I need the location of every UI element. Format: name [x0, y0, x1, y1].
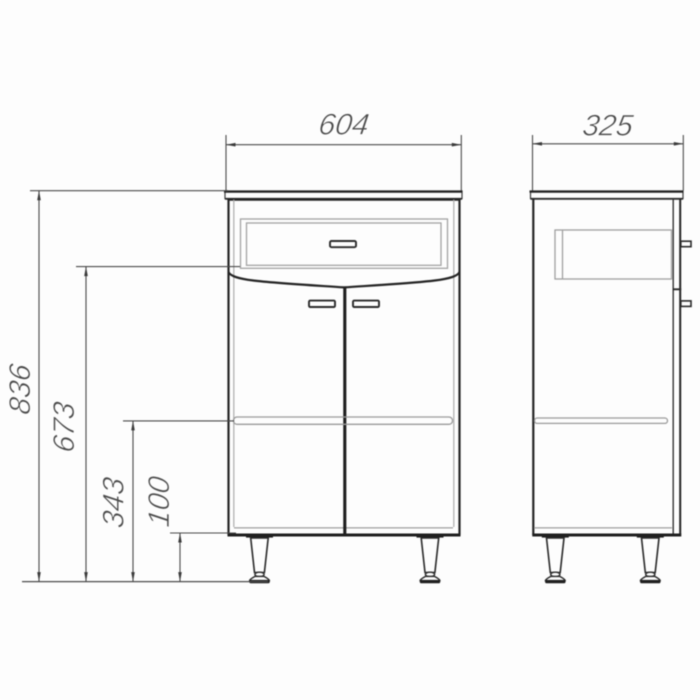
- svg-text:100: 100: [143, 474, 176, 529]
- svg-text:836: 836: [4, 362, 37, 417]
- svg-text:343: 343: [98, 475, 131, 530]
- svg-text:325: 325: [581, 110, 636, 143]
- svg-text:604: 604: [317, 109, 372, 142]
- svg-text:673: 673: [48, 400, 81, 455]
